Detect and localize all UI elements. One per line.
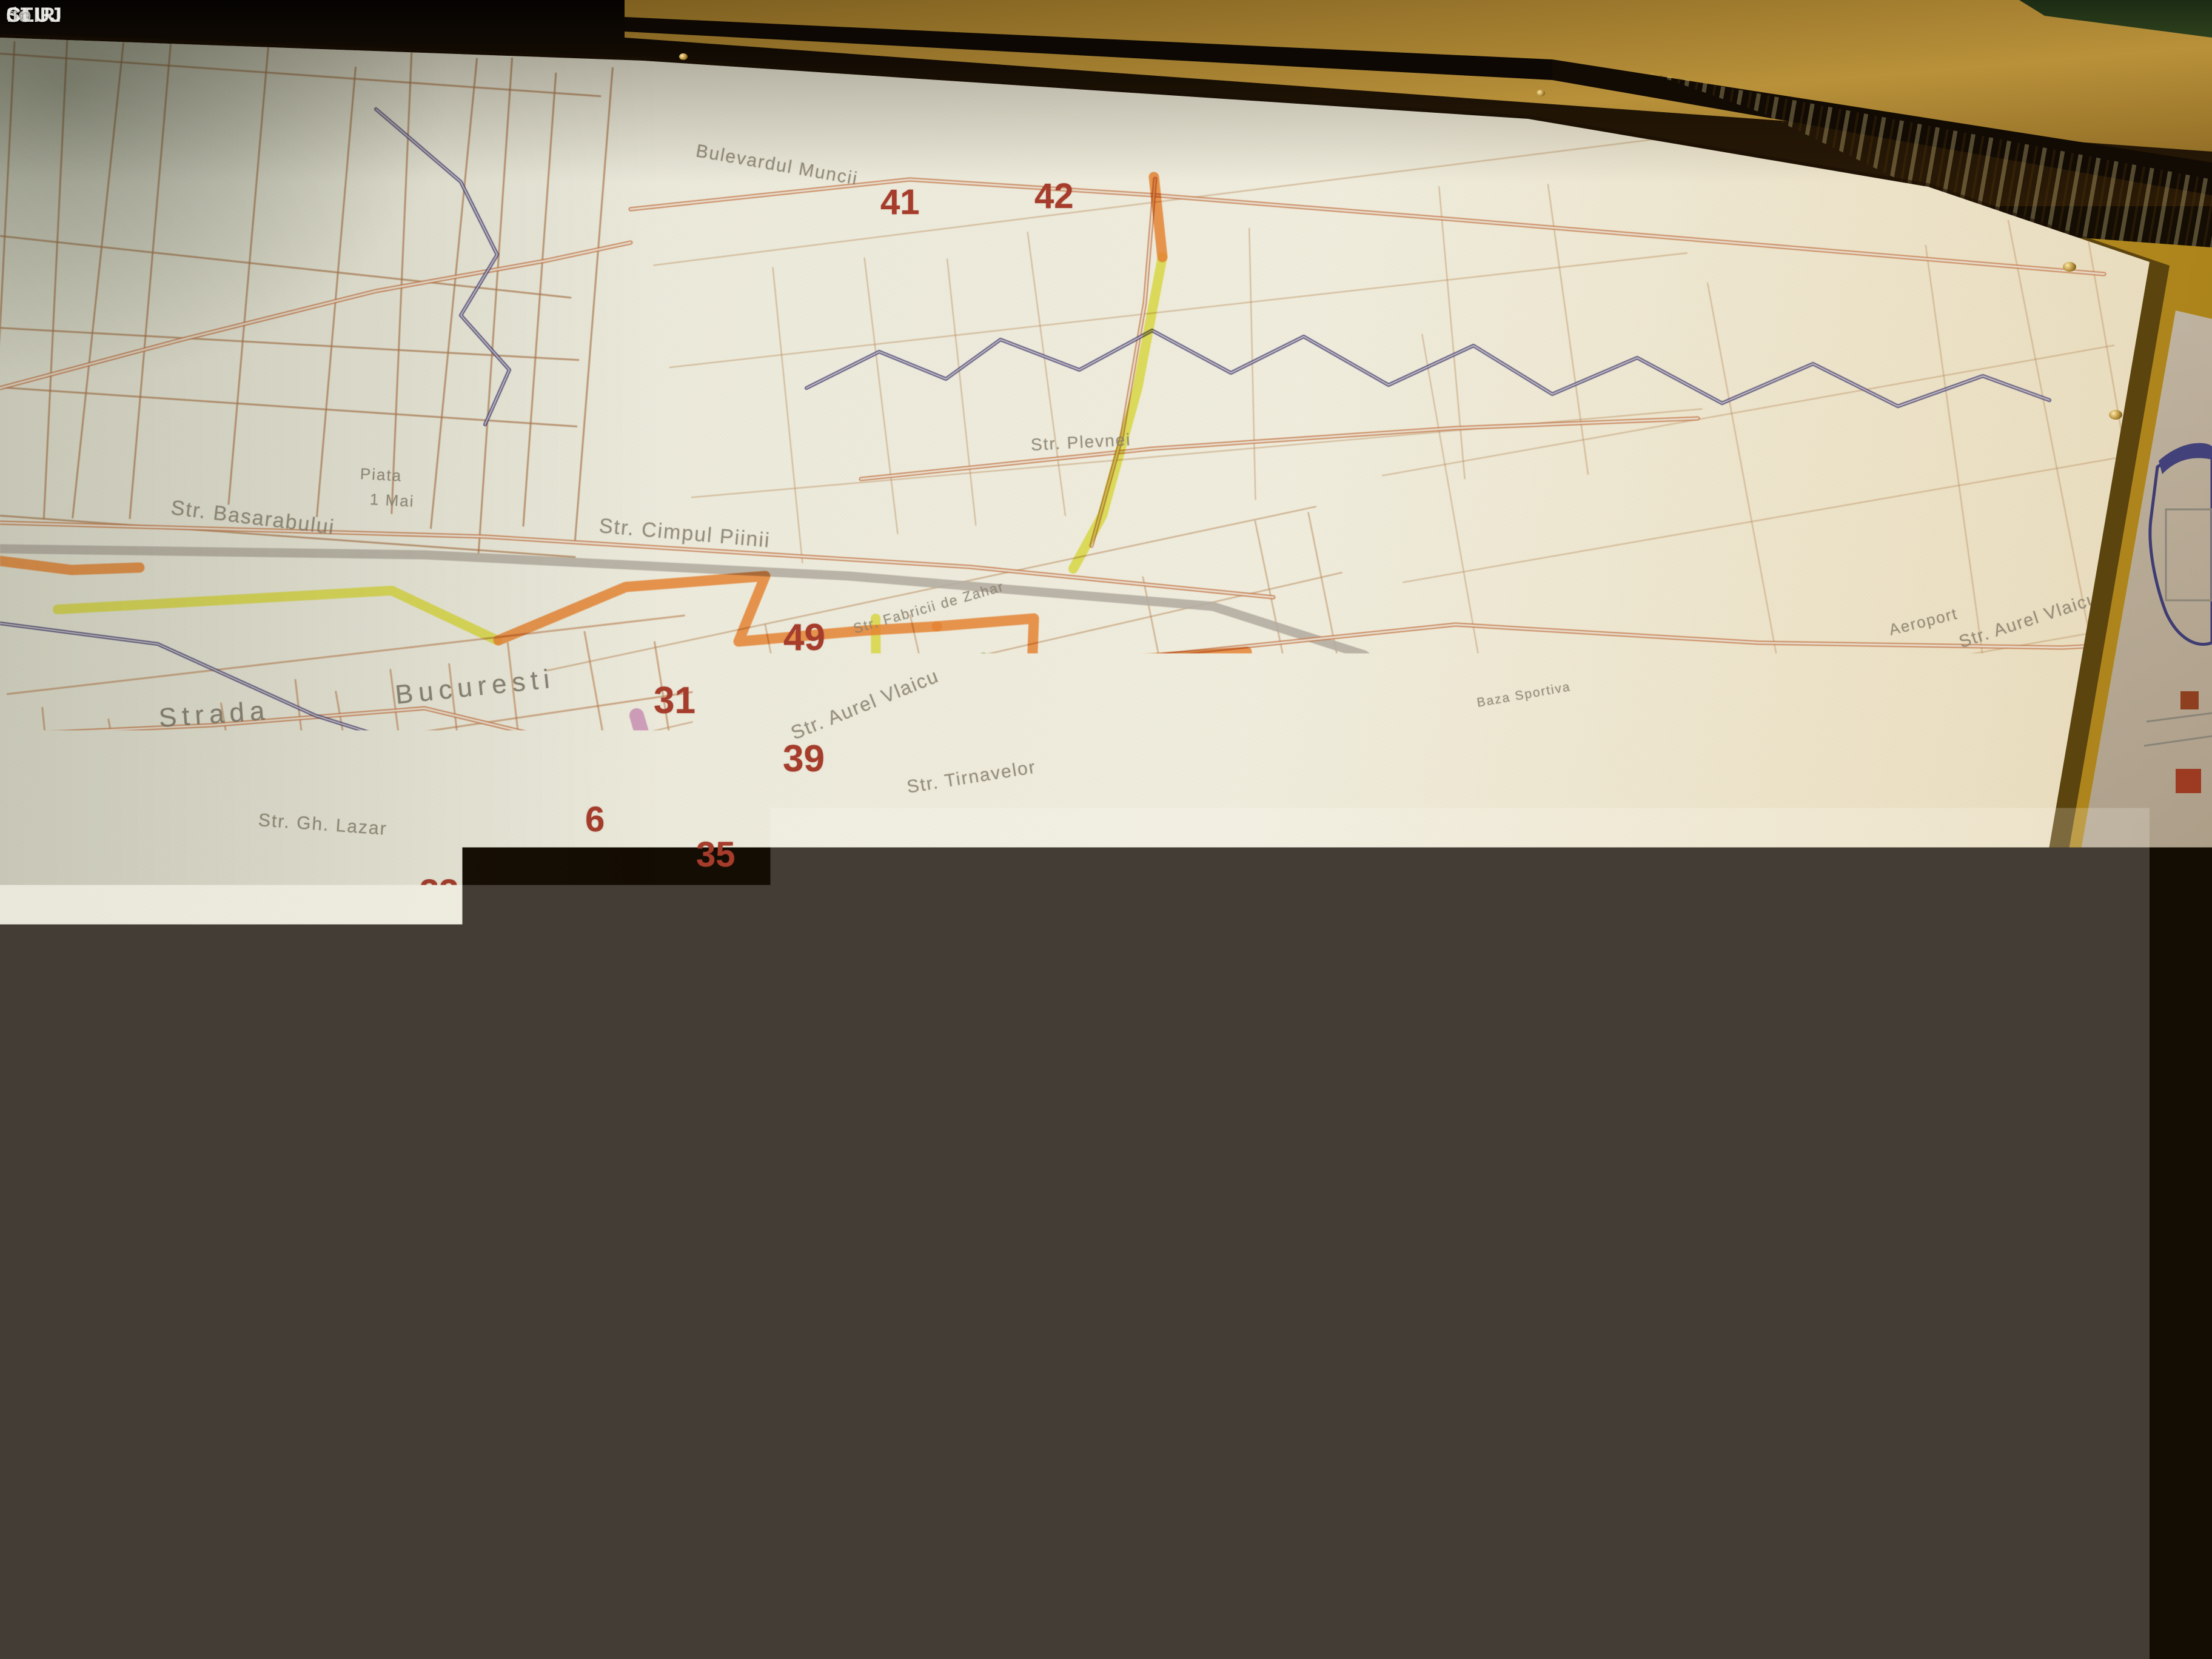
push-pin (2074, 999, 2086, 1008)
screw-dot (679, 53, 688, 60)
screw-dot (1537, 90, 1545, 96)
map-sheet: Bulevardul MunciiStr. PlevneiPiata1 MaiS… (0, 0, 2212, 1659)
watermark-ro: .ro (6, 4, 32, 27)
push-pin (2063, 262, 2076, 272)
warm-glow-bottom-right (0, 0, 2212, 1659)
push-pin (2109, 410, 2122, 420)
photo-of-bike-route-map: Bulevardul MunciiStr. PlevneiPiata1 MaiS… (0, 0, 2212, 1659)
